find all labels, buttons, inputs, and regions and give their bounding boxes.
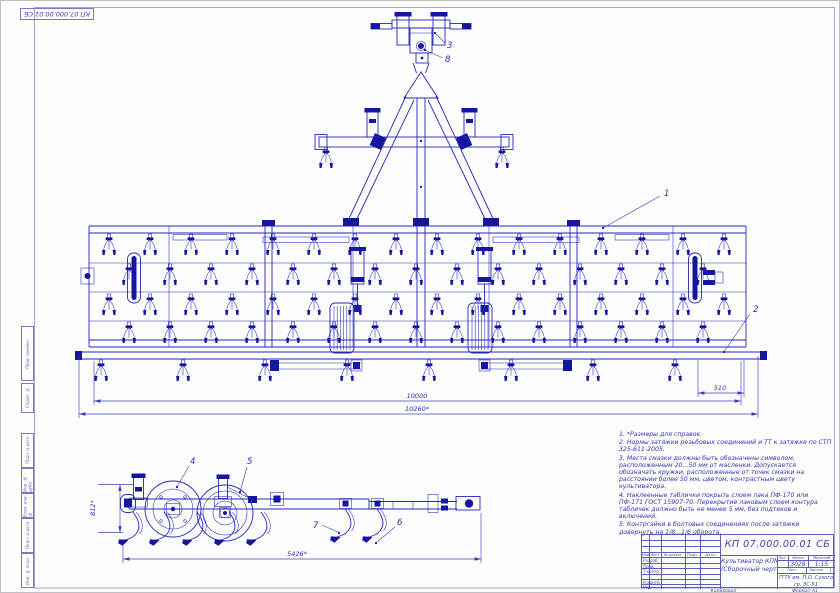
dim-overall-width: 10260* (405, 405, 430, 413)
value-mass: 3028 (788, 561, 808, 568)
row-prov: Пров. (643, 564, 655, 569)
col-list: Лист (649, 553, 661, 557)
title-name-line1: Культиватор КПМ-10 (721, 558, 777, 565)
col-date: Дата (700, 553, 720, 557)
dimension-510: 510 (698, 360, 744, 397)
margin-stamp-inv-podl: Инв. № подл. (21, 553, 34, 588)
col-doc: № докум. (661, 553, 685, 557)
callout-4: 4 (176, 457, 196, 488)
hitch-assembly (371, 12, 471, 73)
corner-stamp-designation: КП 07.000.00.01 СБ (24, 10, 90, 18)
value-scale: 1:15 (808, 561, 835, 568)
label-sheet: Лист (777, 568, 806, 572)
margin-stamp-label: Перв. примен. (25, 338, 30, 368)
margin-stamp-perv-primen: Перв. примен. (21, 326, 34, 381)
callout-6: 6 (375, 518, 403, 544)
org-line1: ГГТУ им. П.О. Сухого (777, 575, 835, 581)
title-designation: КП 07.000.00.01 СБ (720, 539, 835, 550)
margin-stamp-podp-data-1: Подп. и дата (21, 433, 34, 468)
kopiroval-label: Копировал (701, 589, 746, 593)
rear-bar (75, 351, 767, 371)
margin-stamp-vzam-inv: Взам. инв. № (21, 493, 34, 518)
margin-stamp-label: Инв. № дубл. (23, 469, 33, 492)
side-view (118, 474, 480, 546)
dimension-10000: 10000 (94, 361, 741, 405)
callout-1-label: 1 (664, 189, 669, 199)
margin-stamp-inv-dubl: Инв. № дубл. (21, 468, 34, 493)
value-sheets: 1 (826, 568, 835, 573)
side-wheel-front (197, 485, 253, 541)
row-razrab: Разраб. (643, 558, 659, 563)
margin-stamp-label: Подп. и дата (25, 522, 30, 549)
dimension-5426: 5426* (123, 513, 481, 563)
label-sheets: Листов (806, 568, 826, 572)
margin-stamp-label: Инв. № подл. (25, 556, 30, 584)
callout-3-label: 3 (447, 41, 452, 51)
right-hydraulic-cylinder (476, 247, 493, 312)
callout-2-label: 2 (753, 305, 758, 315)
right-support-wheel (689, 253, 724, 303)
label-scale: Масштаб (808, 556, 835, 560)
technical-notes: 1. *Размеры для справок. 2. Нормы затяжк… (619, 431, 832, 537)
dim-inner-width: 10000 (407, 392, 428, 400)
dimension-812: 812* (89, 485, 134, 533)
side-stand-left (130, 474, 148, 508)
format-label: Формат A1 (776, 589, 834, 593)
row-utv: Утв. (643, 585, 651, 590)
callout-6-label: 6 (397, 518, 403, 528)
callout-1: 1 (602, 189, 670, 229)
row-tkontr: Т.контр. (643, 569, 660, 574)
callout-5: 5 (239, 457, 253, 493)
note-2: 2. Нормы затяжки резьбовых соединений и … (619, 439, 832, 453)
callout-7: 7 (313, 521, 340, 534)
callout-4-label: 4 (190, 457, 195, 467)
side-tines (118, 509, 386, 546)
note-1: 1. *Размеры для справок. (619, 431, 832, 438)
title-block: КП 07.000.00.01 СБ Культиватор КПМ-10 (С… (641, 534, 834, 588)
col-izm: Изм. (642, 553, 649, 557)
margin-stamp-label: Справ. № (25, 388, 30, 408)
margin-stamp-label: Подп. и дата (25, 437, 30, 464)
callout-3: 3 (434, 32, 453, 51)
margin-stamp-podp-data-2: Подп. и дата (21, 518, 34, 553)
label-lit: Лит. (777, 556, 788, 560)
dim-side-height: 812* (89, 499, 97, 515)
dim-right-offset: 510 (714, 384, 726, 392)
a-frame (315, 72, 513, 226)
drawing-sheet: 510 10000 10260* 5426* 812* (0, 0, 840, 593)
title-name-line2: (Сборочный чертеж) (721, 566, 777, 573)
label-mass: Масса (788, 556, 808, 560)
col-podp: Подп. (685, 553, 700, 557)
note-3: 3. Места смазки должны быть обозначены с… (619, 455, 832, 491)
org-line2: гр. ЗС-51 (777, 582, 835, 588)
callout-7-label: 7 (313, 521, 319, 531)
callout-5-label: 5 (247, 457, 252, 467)
callout-8-label: 8 (445, 55, 451, 65)
corner-stamp: КП 07.000.00.01 СБ (20, 8, 94, 20)
margin-stamp-label: Взам. инв. № (23, 494, 33, 517)
hitch-eye (465, 499, 473, 507)
dim-side-length: 5426* (287, 550, 308, 558)
margin-stamp-sprav: Справ. № (21, 383, 34, 413)
note-4: 4. Наклеенные таблички покрыть слоем лак… (619, 492, 832, 521)
